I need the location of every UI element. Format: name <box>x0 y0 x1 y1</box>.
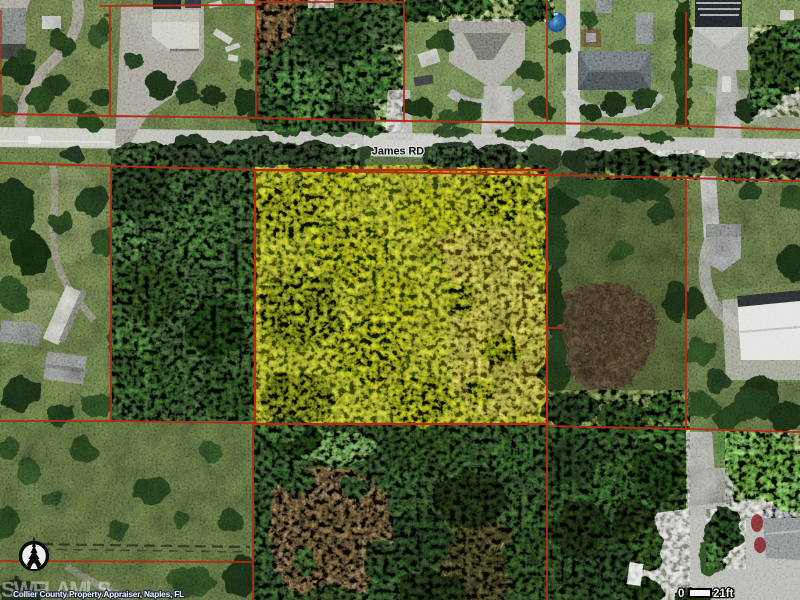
svg-text:Collier County Property Apprai: Collier County Property Appraiser, Naple… <box>13 589 184 599</box>
svg-text:21ft: 21ft <box>713 588 734 600</box>
svg-text:0: 0 <box>678 588 684 600</box>
svg-text:James RD: James RD <box>372 146 424 158</box>
